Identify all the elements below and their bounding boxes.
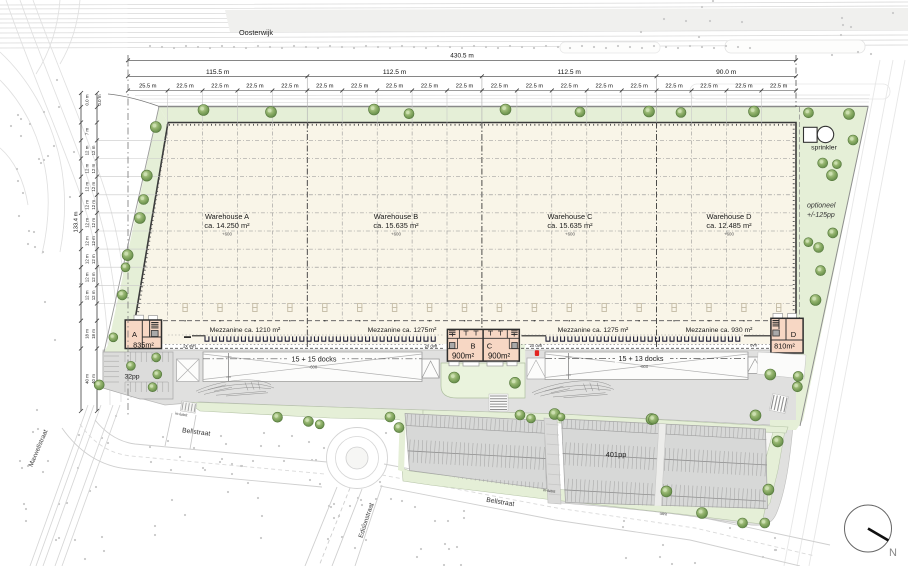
svg-text:12 m: 12 m (91, 254, 96, 264)
svg-text:12 m: 12 m (85, 236, 90, 246)
svg-text:112.5 m: 112.5 m (383, 69, 407, 76)
svg-text:12 m: 12 m (85, 163, 90, 173)
svg-text:430.5 m: 430.5 m (450, 52, 474, 59)
svg-text:12 m: 12 m (85, 254, 90, 264)
svg-text:+600: +600 (565, 231, 575, 236)
svg-text:810m²: 810m² (774, 341, 795, 350)
svg-text:0.0 m: 0.0 m (85, 94, 90, 105)
svg-text:B: B (470, 342, 475, 351)
svg-text:22.5 m: 22.5 m (421, 84, 439, 90)
svg-text:22.5 m: 22.5 m (491, 84, 509, 90)
svg-text:2x ovh: 2x ovh (183, 344, 196, 349)
svg-text:12 m: 12 m (91, 290, 96, 300)
svg-text:+600: +600 (391, 231, 401, 236)
svg-text:sprinkler: sprinkler (811, 145, 837, 152)
svg-text:+600: +600 (724, 231, 734, 236)
svg-text:7 m: 7 m (85, 128, 90, 136)
svg-text:2x ovh: 2x ovh (425, 344, 438, 349)
svg-text:22.5 m: 22.5 m (596, 84, 614, 90)
svg-text:12 m: 12 m (85, 272, 90, 282)
svg-text:115.5 m: 115.5 m (206, 69, 230, 76)
svg-text:2x ovh: 2x ovh (530, 343, 543, 348)
svg-text:22.5 m: 22.5 m (281, 84, 299, 90)
svg-text:ovh: ovh (750, 343, 758, 348)
svg-text:12 m: 12 m (91, 200, 96, 210)
svg-text:Warehouse D: Warehouse D (707, 212, 752, 221)
svg-text:12 m: 12 m (91, 218, 96, 228)
svg-text:22.5 m: 22.5 m (176, 84, 194, 90)
svg-text:22.5 m: 22.5 m (770, 84, 788, 90)
svg-text:Mezzanine ca. 930 m²: Mezzanine ca. 930 m² (686, 327, 754, 334)
svg-text:22.5 m: 22.5 m (561, 84, 579, 90)
svg-text:22.5 m: 22.5 m (665, 84, 683, 90)
svg-text:15 + 13 docks: 15 + 13 docks (619, 354, 664, 363)
svg-text:12 m: 12 m (85, 181, 90, 191)
svg-text:Oosterwijk: Oosterwijk (239, 28, 273, 37)
svg-text:12 m: 12 m (91, 163, 96, 173)
svg-text:12 m: 12 m (85, 290, 90, 300)
svg-text:12 m: 12 m (91, 145, 96, 155)
svg-text:ca. 15.635 m²: ca. 15.635 m² (547, 221, 593, 230)
svg-text:40 m: 40 m (85, 374, 90, 384)
svg-text:22.5 m: 22.5 m (700, 84, 718, 90)
svg-text:18 m: 18 m (91, 329, 96, 339)
svg-text:133.4 m: 133.4 m (74, 211, 80, 232)
svg-text:12 m: 12 m (85, 145, 90, 155)
svg-text:12 m: 12 m (85, 218, 90, 228)
svg-text:ca. 15.635 m²: ca. 15.635 m² (373, 221, 419, 230)
svg-text:Warehouse C: Warehouse C (548, 212, 594, 221)
svg-text:ca. 14.250 m²: ca. 14.250 m² (204, 221, 250, 230)
svg-text:Mezzanine ca. 1275m²: Mezzanine ca. 1275m² (368, 327, 437, 334)
svg-text:22.5 m: 22.5 m (526, 84, 544, 90)
svg-text:C: C (487, 342, 493, 351)
svg-text:Mezzanine ca. 1275 m²: Mezzanine ca. 1275 m² (558, 327, 629, 334)
svg-text:Warehouse A: Warehouse A (205, 212, 249, 221)
svg-text:22.5 m: 22.5 m (386, 84, 404, 90)
svg-text:A: A (132, 330, 137, 339)
svg-text:22.5 m: 22.5 m (246, 84, 264, 90)
svg-text:22.5 m: 22.5 m (211, 84, 229, 90)
svg-text:12 m: 12 m (91, 236, 96, 246)
svg-text:D: D (791, 330, 797, 339)
svg-text:900m²: 900m² (488, 351, 511, 360)
svg-text:+/-125pp: +/-125pp (807, 212, 835, 219)
svg-text:835m²: 835m² (133, 340, 154, 349)
svg-text:22.5 m: 22.5 m (316, 84, 334, 90)
svg-text:32pp: 32pp (124, 374, 139, 381)
svg-text:0.0 m: 0.0 m (97, 94, 102, 105)
svg-text:90.0 m: 90.0 m (716, 69, 737, 76)
svg-text:401pp: 401pp (606, 450, 627, 459)
svg-text:+600: +600 (222, 231, 232, 236)
svg-text:22.5 m: 22.5 m (631, 84, 649, 90)
svg-text:112.5 m: 112.5 m (558, 69, 582, 76)
svg-text:-600: -600 (640, 364, 649, 369)
svg-text:22.5 m: 22.5 m (351, 84, 369, 90)
svg-text:ca. 12.485 m²: ca. 12.485 m² (706, 221, 752, 230)
svg-text:Mezzanine ca. 1210 m²: Mezzanine ca. 1210 m² (210, 327, 281, 334)
svg-text:12 m: 12 m (85, 200, 90, 210)
svg-text:15 + 15 docks: 15 + 15 docks (292, 355, 337, 364)
svg-text:Warehouse B: Warehouse B (374, 212, 419, 221)
svg-text:-600: -600 (309, 365, 318, 370)
svg-text:18 m: 18 m (85, 329, 90, 339)
svg-text:12 m: 12 m (91, 181, 96, 191)
svg-text:25.5 m: 25.5 m (139, 84, 157, 90)
svg-text:22.5 m: 22.5 m (456, 84, 474, 90)
svg-text:optioneel: optioneel (807, 203, 836, 210)
svg-text:N: N (889, 547, 897, 559)
svg-text:12 m: 12 m (91, 272, 96, 282)
svg-text:22.5 m: 22.5 m (735, 84, 753, 90)
svg-text:900m²: 900m² (452, 351, 475, 360)
